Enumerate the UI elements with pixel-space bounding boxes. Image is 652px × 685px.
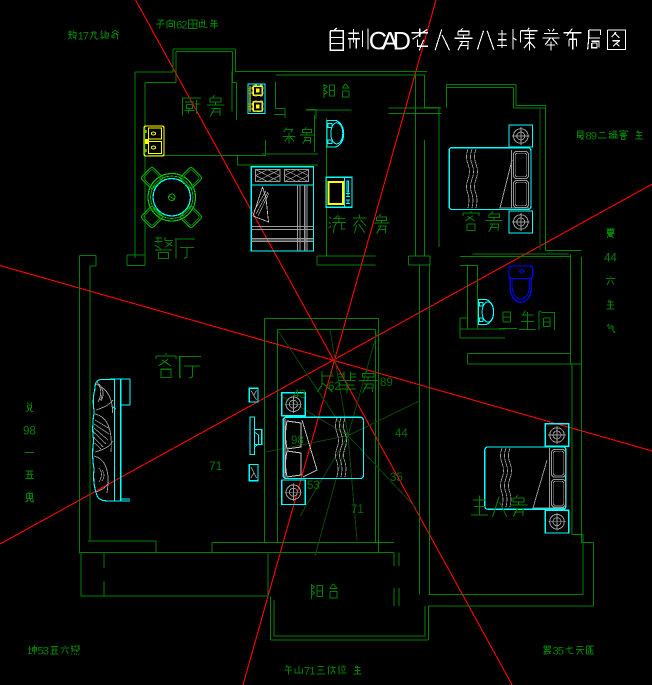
svg-text:CAD: CAD <box>369 28 411 56</box>
svg-text:89: 89 <box>586 131 598 143</box>
svg-text:89: 89 <box>380 377 393 389</box>
svg-text:98: 98 <box>291 435 304 447</box>
svg-text:53: 53 <box>38 646 50 658</box>
svg-text:71: 71 <box>304 666 316 678</box>
svg-text:43: 43 <box>293 389 306 401</box>
svg-text:98: 98 <box>23 424 36 437</box>
svg-text:62: 62 <box>176 20 188 32</box>
svg-text:35: 35 <box>553 646 565 658</box>
svg-text:71: 71 <box>209 459 223 473</box>
svg-text:44: 44 <box>604 252 617 265</box>
svg-text:71: 71 <box>351 504 364 516</box>
svg-text:62: 62 <box>328 381 341 393</box>
svg-text:44: 44 <box>395 428 408 440</box>
svg-text:35: 35 <box>390 472 403 484</box>
svg-text:17: 17 <box>78 31 90 43</box>
svg-text:53: 53 <box>307 480 320 492</box>
